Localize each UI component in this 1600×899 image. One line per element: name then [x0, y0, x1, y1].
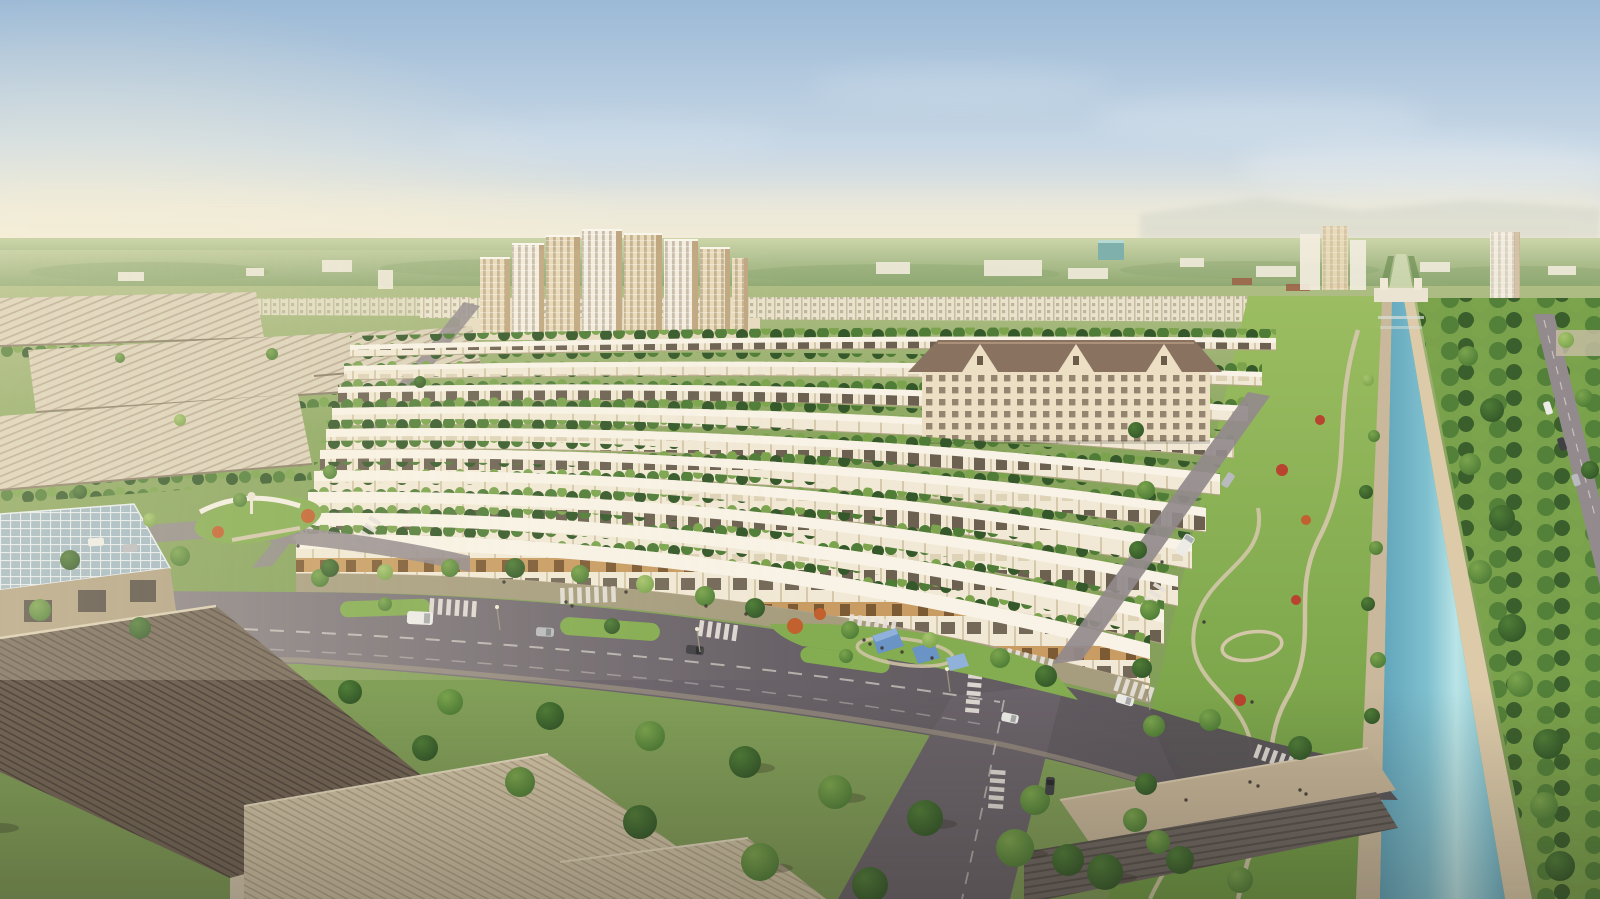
teal-glass-building: [1098, 240, 1124, 260]
aerial-masterplan-rendering: [0, 0, 1600, 899]
warm-light-overlay: [0, 250, 820, 680]
vignette: [0, 690, 1600, 899]
apartment-building: [908, 340, 1222, 444]
